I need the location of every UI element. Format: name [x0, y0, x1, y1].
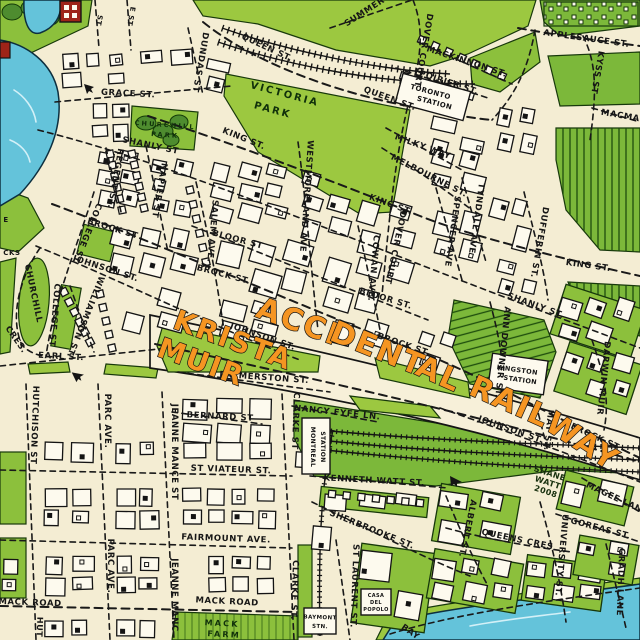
building: [140, 204, 148, 212]
building-detail: [185, 52, 189, 56]
building-detail: [455, 501, 460, 506]
building: [209, 510, 224, 522]
partial-street-label: E: [3, 216, 8, 224]
building: [184, 443, 206, 458]
building: [359, 550, 392, 582]
montreal-station-label: STATION: [319, 431, 326, 462]
building-detail: [586, 546, 591, 551]
building: [130, 161, 138, 169]
baymont-station-label: STN.: [312, 624, 328, 631]
building: [62, 72, 82, 88]
building-detail: [505, 285, 510, 290]
building-detail: [214, 82, 219, 87]
building-detail: [150, 263, 155, 268]
building-detail: [590, 363, 595, 368]
building: [117, 577, 135, 593]
building-detail: [122, 587, 126, 591]
building-detail: [80, 455, 84, 459]
building-detail: [319, 543, 323, 547]
building-detail: [253, 287, 258, 292]
street-label: JEANNE MANC: [169, 557, 179, 632]
street-label: PARC AVE.: [105, 539, 115, 594]
building: [71, 443, 93, 463]
building: [117, 620, 135, 636]
building-detail: [362, 569, 366, 573]
casa-del-popolo-label: CASA: [368, 593, 385, 599]
building: [216, 423, 241, 444]
building: [73, 577, 93, 590]
building: [217, 443, 242, 461]
building: [108, 344, 116, 352]
montreal-station-label: MONTREAL: [309, 427, 316, 468]
park-label: FARM: [207, 629, 241, 640]
building: [45, 489, 67, 507]
building: [2, 579, 16, 590]
building: [209, 578, 226, 592]
building: [45, 578, 65, 596]
street-label: CLARKE ST.: [288, 560, 300, 620]
building-detail: [335, 278, 340, 283]
building: [141, 50, 163, 63]
building-detail: [152, 516, 156, 520]
building-detail: [181, 264, 186, 269]
building-detail: [145, 54, 149, 58]
building-detail: [116, 133, 120, 137]
building-detail: [123, 174, 128, 179]
building-detail: [252, 171, 257, 176]
building-detail: [52, 625, 56, 629]
building-detail: [179, 162, 184, 167]
building-detail: [191, 515, 195, 519]
building-detail: [501, 205, 506, 210]
building: [432, 558, 457, 581]
building: [140, 511, 159, 530]
building-detail: [55, 560, 59, 564]
building: [117, 489, 135, 506]
building: [141, 557, 159, 570]
building-detail: [191, 403, 195, 407]
street-label: CLARKE ST: [289, 392, 301, 450]
building: [232, 489, 245, 504]
map-canvas: GRACE ST.QUEEN ST.QUEEN ST.DUNDAS STMACK…: [0, 0, 640, 640]
building-detail: [572, 358, 577, 363]
building-detail: [488, 498, 493, 503]
building-detail: [330, 203, 335, 208]
building: [387, 496, 395, 504]
building: [93, 104, 107, 118]
building-detail: [470, 156, 475, 161]
building: [328, 490, 336, 498]
building-detail: [214, 561, 218, 565]
building: [116, 511, 135, 528]
building: [73, 489, 91, 506]
building: [192, 215, 200, 223]
building-detail: [597, 306, 602, 311]
building: [401, 498, 409, 506]
building: [133, 171, 141, 179]
building: [137, 193, 145, 201]
building-detail: [147, 583, 151, 587]
building: [171, 49, 193, 65]
building-detail: [503, 115, 508, 120]
building: [186, 186, 194, 194]
building: [459, 151, 479, 171]
building-detail: [75, 628, 79, 632]
building-detail: [255, 192, 260, 197]
building: [92, 125, 107, 137]
building: [135, 182, 143, 190]
building: [257, 556, 270, 569]
building-detail: [303, 255, 308, 260]
building-detail: [523, 114, 528, 119]
building: [110, 54, 123, 66]
building-detail: [120, 449, 124, 453]
building-detail: [572, 331, 577, 336]
building: [207, 489, 224, 505]
building: [108, 73, 124, 84]
building-detail: [48, 513, 52, 517]
hand-drawn-city-map: GRACE ST.QUEEN ST.QUEEN ST.DUNDAS STMACK…: [0, 0, 640, 640]
partial-street-label: HUT: [35, 617, 45, 638]
building: [4, 559, 18, 574]
building: [522, 279, 537, 294]
building: [281, 268, 306, 293]
building: [265, 183, 282, 198]
building-detail: [70, 63, 74, 67]
building: [372, 495, 380, 503]
building: [561, 481, 585, 508]
building: [122, 312, 144, 334]
building: [432, 582, 454, 601]
building-detail: [178, 243, 183, 248]
building-detail: [121, 108, 125, 112]
building: [102, 317, 110, 325]
building-detail: [143, 496, 147, 500]
street-label: PARC AVE.: [102, 394, 112, 449]
casa-del-popolo-label: POPOLO: [363, 607, 389, 613]
building: [140, 621, 155, 638]
building: [99, 303, 107, 311]
building-detail: [121, 629, 125, 633]
building-detail: [127, 196, 132, 201]
building: [416, 499, 424, 507]
building: [357, 493, 365, 501]
building: [46, 557, 63, 575]
building: [72, 620, 87, 635]
building-detail: [406, 602, 411, 607]
building: [189, 200, 197, 208]
building: [217, 398, 243, 413]
partial-street-label: CKS: [3, 249, 20, 257]
casa-del-popolo-label: DEL: [370, 600, 382, 606]
building: [233, 577, 248, 591]
building: [257, 578, 273, 593]
building-detail: [237, 560, 241, 564]
building-detail: [124, 241, 129, 246]
building: [45, 442, 63, 460]
street-label: JEANNE MANCE ST: [169, 403, 179, 501]
park-label: MACK: [204, 618, 239, 629]
building-detail: [594, 589, 598, 593]
building: [232, 556, 250, 568]
building: [105, 330, 113, 338]
building: [86, 53, 98, 66]
building: [439, 491, 469, 510]
street-label: MACK ROAD: [0, 597, 62, 609]
building: [343, 492, 351, 500]
building-detail: [503, 138, 508, 143]
building: [250, 443, 271, 459]
building: [210, 163, 230, 183]
building-detail: [534, 593, 539, 598]
building-detail: [619, 388, 624, 393]
baymont-station-label: BAYMONT: [303, 614, 336, 621]
building: [182, 488, 200, 501]
building: [257, 489, 274, 501]
building-detail: [235, 515, 239, 519]
building: [491, 558, 511, 577]
